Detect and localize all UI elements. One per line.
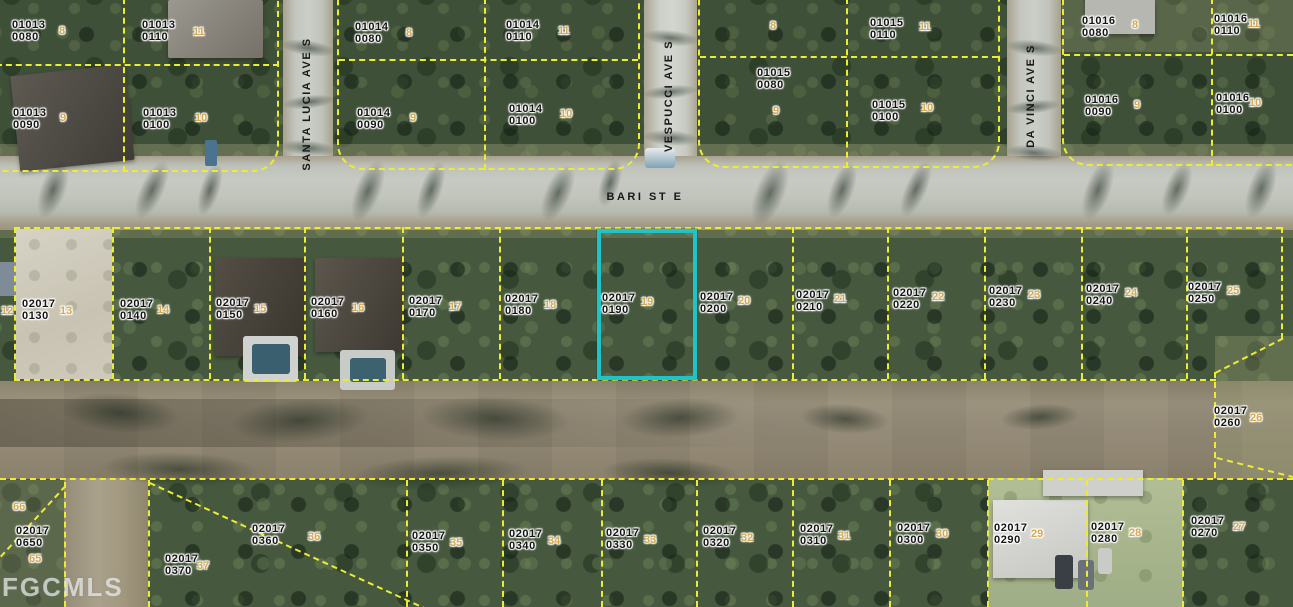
lot-number: 24 — [1125, 287, 1137, 299]
lot-number: 66 — [13, 501, 25, 513]
lot-number: 11 — [919, 21, 931, 33]
parcel-id-label: 020170190 — [602, 293, 636, 316]
lot-number: 23 — [1028, 289, 1040, 301]
parcel-id-label: 020170340 — [509, 529, 543, 552]
parcel-id-label: 020170270 — [1191, 516, 1225, 539]
lot-number: 15 — [254, 303, 266, 315]
lot-number: 9 — [1134, 99, 1140, 111]
parcel-id-label: 010150100 — [872, 100, 906, 123]
parcel-id-label: 010130080 — [12, 20, 46, 43]
lot-number: 37 — [197, 560, 209, 572]
lot-number: 27 — [1233, 521, 1245, 533]
lot-number: 34 — [548, 535, 560, 547]
lot-number: 8 — [1132, 19, 1138, 31]
lot-number: 21 — [834, 293, 846, 305]
parcel-id-label: 020170140 — [120, 299, 154, 322]
lot-number: 10 — [560, 108, 572, 120]
lot-number: 25 — [1227, 285, 1239, 297]
street-label-bari-st-e: BARI ST E — [607, 191, 684, 203]
lot-number: 11 — [1248, 18, 1260, 30]
parcel-id-label: 020170180 — [505, 294, 539, 317]
lot-number: 8 — [770, 20, 776, 32]
lot-number: 11 — [558, 25, 570, 37]
lot-number: 30 — [936, 528, 948, 540]
lot-number: 9 — [410, 112, 416, 124]
parcel-id-label: 020170220 — [893, 288, 927, 311]
street-label-vespucci-ave-s: VESPUCCI AVE S — [663, 40, 675, 152]
parcel-id-label: 020170170 — [409, 296, 443, 319]
parcel-id-label: 020170320 — [703, 526, 737, 549]
parcel-id-label: 020170650 — [16, 526, 50, 549]
parcel-id-label: 020170210 — [796, 290, 830, 313]
map-labels-layer: 0101300800101301100101300900101301000101… — [0, 0, 1293, 607]
parcel-id-label: 010130110 — [142, 20, 176, 43]
parcel-id-label: 010140100 — [509, 104, 543, 127]
parcel-id-label: 010130090 — [13, 108, 47, 131]
street-label-santa-lucia-ave-s: SANTA LUCIA AVE S — [301, 37, 313, 170]
street-label-da-vinci-ave-s: DA VINCI AVE S — [1025, 44, 1037, 148]
parcel-id-label: 020170350 — [412, 531, 446, 554]
parcel-id-label: 010150110 — [870, 18, 904, 41]
parcel-id-label: 020170310 — [800, 524, 834, 547]
parcel-id-label: 010140080 — [355, 22, 389, 45]
lot-number: 13 — [60, 305, 72, 317]
lot-number: 31 — [838, 530, 850, 542]
parcel-id-label: 010130100 — [143, 108, 177, 131]
lot-number: 14 — [157, 304, 169, 316]
lot-number: 33 — [644, 534, 656, 546]
lot-number: 17 — [449, 301, 461, 313]
lot-number: 8 — [59, 25, 65, 37]
parcel-id-label: 020170160 — [311, 297, 345, 320]
lot-number: 16 — [352, 302, 364, 314]
parcel-id-label: 020170200 — [700, 292, 734, 315]
parcel-id-label: 020170300 — [897, 523, 931, 546]
lot-number: 10 — [921, 102, 933, 114]
lot-number: 9 — [773, 105, 779, 117]
lot-number: 29 — [1031, 528, 1043, 540]
lot-number: 28 — [1129, 527, 1141, 539]
lot-number: 36 — [308, 531, 320, 543]
lot-number: 65 — [29, 553, 41, 565]
watermark: FGCMLS — [2, 572, 124, 603]
parcel-id-label: 020170260 — [1214, 406, 1248, 429]
parcel-id-label: 010160090 — [1085, 95, 1119, 118]
parcel-id-label: 020170330 — [606, 528, 640, 551]
parcel-id-label: 020170370 — [165, 554, 199, 577]
parcel-id-label: 010140110 — [506, 20, 540, 43]
parcel-id-label: 020170150 — [216, 298, 250, 321]
aerial-parcel-map: 0101300800101301100101300900101301000101… — [0, 0, 1293, 607]
lot-number: 20 — [738, 295, 750, 307]
parcel-id-label: 020170290 — [994, 523, 1028, 546]
lot-number: 32 — [741, 532, 753, 544]
parcel-id-label: 010140090 — [357, 108, 391, 131]
parcel-id-label: 020170250 — [1188, 282, 1222, 305]
lot-number: 11 — [193, 26, 205, 38]
lot-number: 8 — [406, 27, 412, 39]
parcel-id-label: 010150080 — [757, 68, 791, 91]
parcel-id-label: 020170360 — [252, 524, 286, 547]
lot-number: 10 — [1249, 97, 1261, 109]
lot-number: 22 — [932, 291, 944, 303]
parcel-id-label: 010160110 — [1214, 14, 1248, 37]
parcel-id-label: 020170230 — [989, 286, 1023, 309]
parcel-id-label: 020170130 — [22, 299, 56, 322]
parcel-id-label: 020170240 — [1086, 284, 1120, 307]
lot-number: 12 — [1, 305, 13, 317]
lot-number: 10 — [195, 112, 207, 124]
lot-number: 18 — [544, 299, 556, 311]
lot-number: 35 — [450, 537, 462, 549]
lot-number: 19 — [641, 296, 653, 308]
parcel-id-label: 010160080 — [1082, 16, 1116, 39]
lot-number: 9 — [60, 112, 66, 124]
lot-number: 26 — [1250, 412, 1262, 424]
parcel-id-label: 010160100 — [1216, 93, 1250, 116]
parcel-id-label: 020170280 — [1091, 522, 1125, 545]
